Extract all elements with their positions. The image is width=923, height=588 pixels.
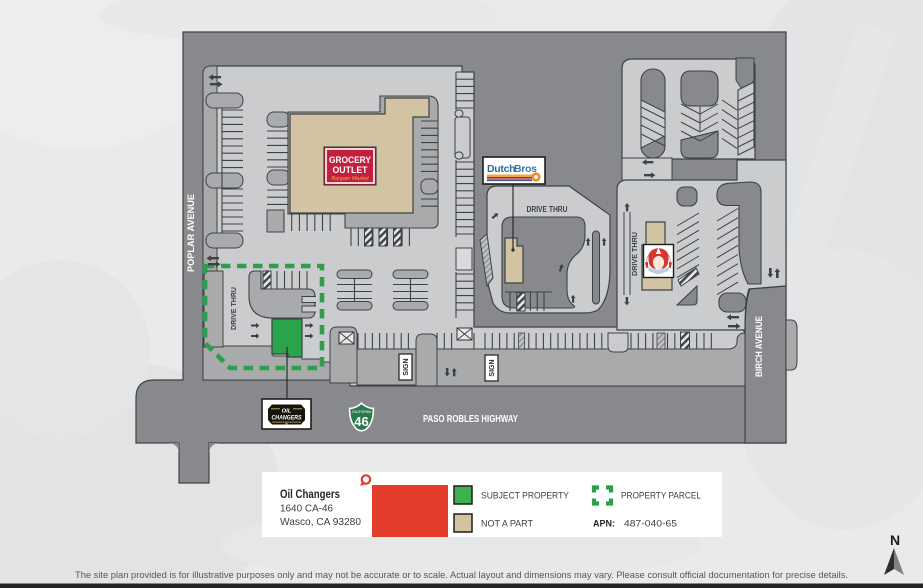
svg-text:SIGN: SIGN <box>489 359 496 376</box>
svg-text:1640 CA-46: 1640 CA-46 <box>280 503 333 515</box>
svg-text:DRIVE THRU: DRIVE THRU <box>527 205 568 214</box>
svg-text:OUTLET: OUTLET <box>333 165 368 175</box>
svg-text:Oil Changers: Oil Changers <box>280 489 340 501</box>
svg-text:DRIVE THRU: DRIVE THRU <box>630 232 639 276</box>
svg-text:PROPERTY PARCEL: PROPERTY PARCEL <box>621 491 701 501</box>
svg-text:DRIVE THRU: DRIVE THRU <box>229 287 238 330</box>
svg-text:N: N <box>890 532 900 548</box>
svg-text:NOT A PART: NOT A PART <box>481 519 534 529</box>
svg-text:487-040-65: 487-040-65 <box>624 519 677 529</box>
svg-text:The site plan provided is for: The site plan provided is for illustrati… <box>75 570 848 580</box>
svg-text:Wasco, CA 93280: Wasco, CA 93280 <box>280 516 361 528</box>
svg-text:BIRCH AVENUE: BIRCH AVENUE <box>754 316 764 377</box>
svg-text:Dutch: Dutch <box>487 163 515 175</box>
svg-text:PASO ROBLES HIGHWAY: PASO ROBLES HIGHWAY <box>423 413 518 425</box>
svg-text:POPLAR AVENUE: POPLAR AVENUE <box>186 194 196 272</box>
svg-text:SUBJECT PROPERTY: SUBJECT PROPERTY <box>481 491 569 501</box>
svg-text:Bargain Market: Bargain Market <box>331 176 369 182</box>
svg-text:APN:: APN: <box>593 519 615 529</box>
svg-text:46: 46 <box>354 414 368 429</box>
svg-text:SIGN: SIGN <box>403 358 410 375</box>
svg-text:CHANGERS: CHANGERS <box>272 415 303 422</box>
